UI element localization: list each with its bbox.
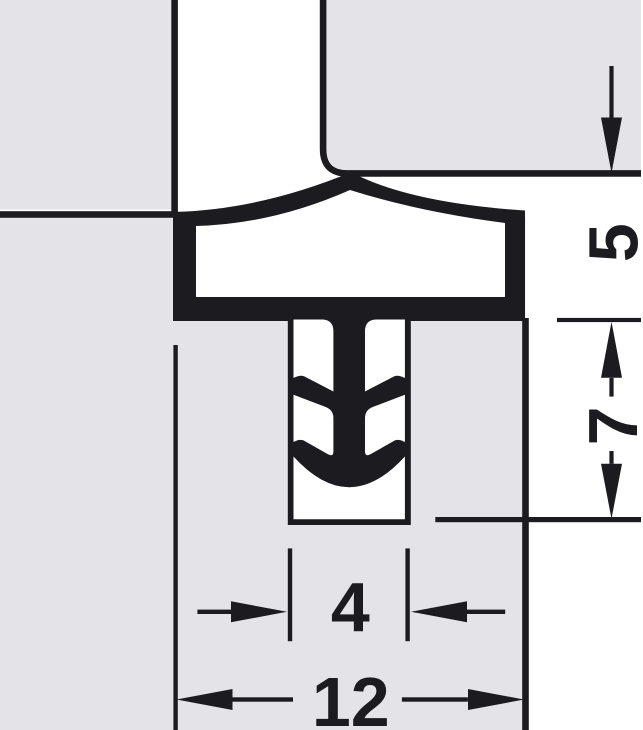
svg-text:7: 7 bbox=[574, 406, 643, 445]
svg-text:12: 12 bbox=[312, 663, 390, 730]
svg-text:5: 5 bbox=[574, 223, 643, 262]
svg-text:4: 4 bbox=[331, 569, 370, 647]
